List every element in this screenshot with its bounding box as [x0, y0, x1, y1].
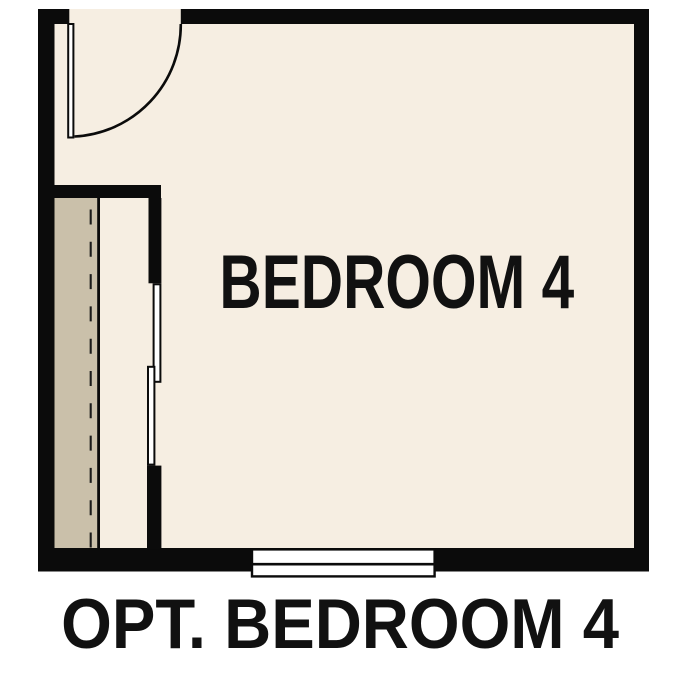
svg-text:BEDROOM 4: BEDROOM 4 — [219, 241, 574, 325]
svg-text:OPT. BEDROOM 4: OPT. BEDROOM 4 — [61, 586, 619, 664]
